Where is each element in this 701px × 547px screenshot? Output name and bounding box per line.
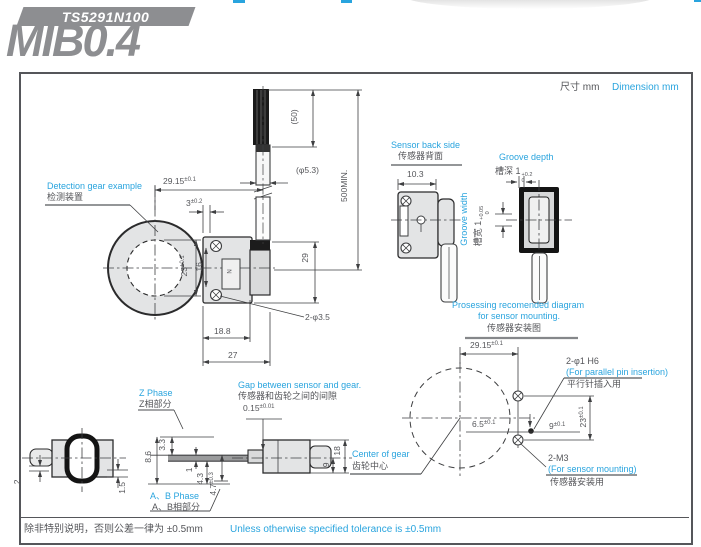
dim-29-15: 29.15±0.1 [163,177,196,187]
dim-18-8: 18.8 [214,327,231,337]
z-phase-label-en: Z Phase [139,388,173,398]
m3-label-zh: 传感器安装用 [550,477,604,487]
center-of-gear-zh: 齿轮中心 [352,461,388,471]
sensor-marking: N [228,267,235,275]
dim-4-7: 4.7±0.3 [209,469,219,499]
dim-9-side: 9 [322,460,332,470]
detection-gear-label-en: Detection gear example [47,181,142,191]
dim-2-phi3-5: 2-φ3.5 [305,313,330,323]
dim-0-15: 0.15±0.01 [243,404,275,414]
pin-label-en: (For parallel pin insertion) [566,367,668,377]
mount-dim-6-5: 6.5±0.1 [472,420,495,430]
dim-1: 1 [185,466,195,474]
gap-label-zh: 传感器和齿轮之间的间隙 [238,391,337,401]
dim-2: 2 [13,477,23,487]
dim-3: 3±0.2 [186,199,202,209]
ab-phase-label-en: A、B Phase [150,491,199,501]
gap-label-en: Gap between sensor and gear. [238,380,361,390]
sensor-back-label-zh: 传感器背面 [398,151,443,161]
mount-title-en1: Prosessing recomended diagram [452,300,584,310]
groove-depth-label-zh: 槽深 1+0.20 [495,166,532,184]
groove-width-label-zh: 槽宽 1+0.050 [473,198,491,254]
mount-title-en2: for sensor mounting. [478,311,560,321]
z-phase-label-zh: Z相部分 [139,399,172,409]
mount-dim-23: 23±0.1 [579,402,589,432]
dim-500min: 500MIN. [340,164,350,208]
sensor-back-label-en: Sensor back side [391,140,460,150]
dim-16: 16 [195,259,205,275]
top-swoosh-artifact [402,0,658,9]
mount-dim-9: 9±0.1 [549,422,565,432]
groove-depth-label-en: Groove depth [499,152,554,162]
dim-27: 27 [228,351,237,361]
dim-4-3: 4.3 [196,470,206,488]
sensor-back-view [391,165,463,302]
datasheet-page: TS5291N100 MIB0.4 尺寸 mm Dimension mm [0,0,701,547]
dim-8-6: 8.6 [144,448,154,466]
groove-view [495,176,572,303]
pin-label: 2-φ1 H6 [566,356,599,366]
mount-title-zh: 传感器安装图 [487,323,541,333]
dim-phi5-3: (φ5.3) [296,166,319,176]
pin-label-zh: 平行针插入用 [567,379,621,389]
tolerance-note-en: Unless otherwise specified tolerance is … [230,524,441,536]
dim-50: (50) [290,105,300,129]
dim-29: 29 [301,250,311,266]
dim-18-side: 18 [333,444,343,458]
groove-width-label-en: Groove width [459,189,469,249]
mount-dim-29-15: 29.15±0.1 [470,341,503,351]
dim-10-3: 10.3 [407,170,424,180]
ab-phase-label-zh: A、B相部分 [152,502,200,512]
tolerance-note-zh: 除非特别说明，否则公差一律为 ±0.5mm [24,524,203,536]
dim-3-3: 3.3 [158,436,168,454]
dim-23: 23±0.1 [180,252,190,280]
gear-front-dims [45,90,362,366]
m3-label-en: (For sensor mounting) [548,464,637,474]
m3-label: 2-M3 [548,453,569,463]
detection-gear-label-zh: 检测装置 [47,192,83,202]
dim-1-5: 1.5 [118,480,128,496]
center-of-gear-en: Center of gear [352,449,410,459]
